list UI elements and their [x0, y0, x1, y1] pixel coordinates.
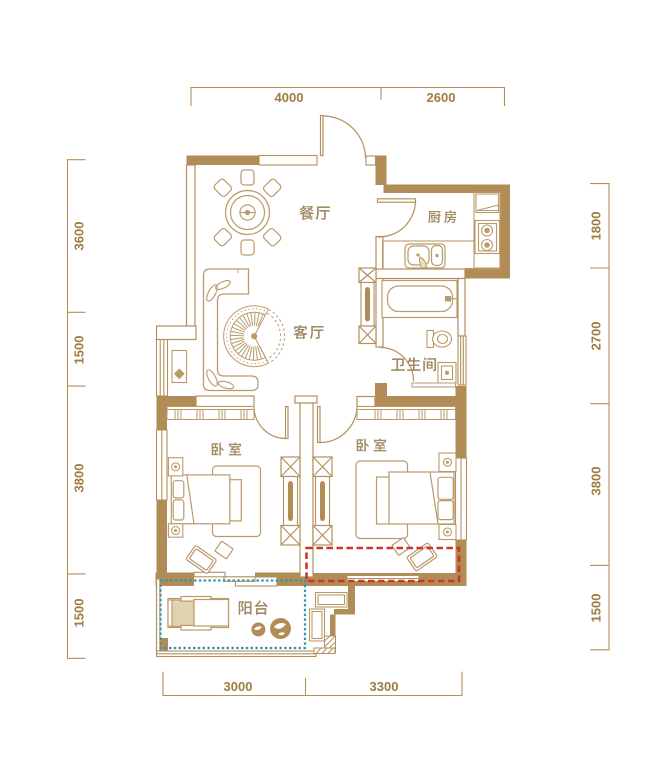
svg-text:1500: 1500 — [71, 336, 86, 365]
svg-text:3000: 3000 — [224, 679, 253, 694]
svg-text:2700: 2700 — [588, 322, 603, 351]
svg-text:4000: 4000 — [275, 90, 304, 105]
svg-text:3300: 3300 — [370, 679, 399, 694]
svg-text:3800: 3800 — [71, 464, 86, 493]
svg-text:3600: 3600 — [71, 222, 86, 251]
svg-text:2600: 2600 — [427, 90, 456, 105]
svg-text:1800: 1800 — [588, 212, 603, 241]
svg-text:1500: 1500 — [588, 594, 603, 623]
svg-text:3800: 3800 — [588, 467, 603, 496]
svg-text:1500: 1500 — [71, 599, 86, 628]
